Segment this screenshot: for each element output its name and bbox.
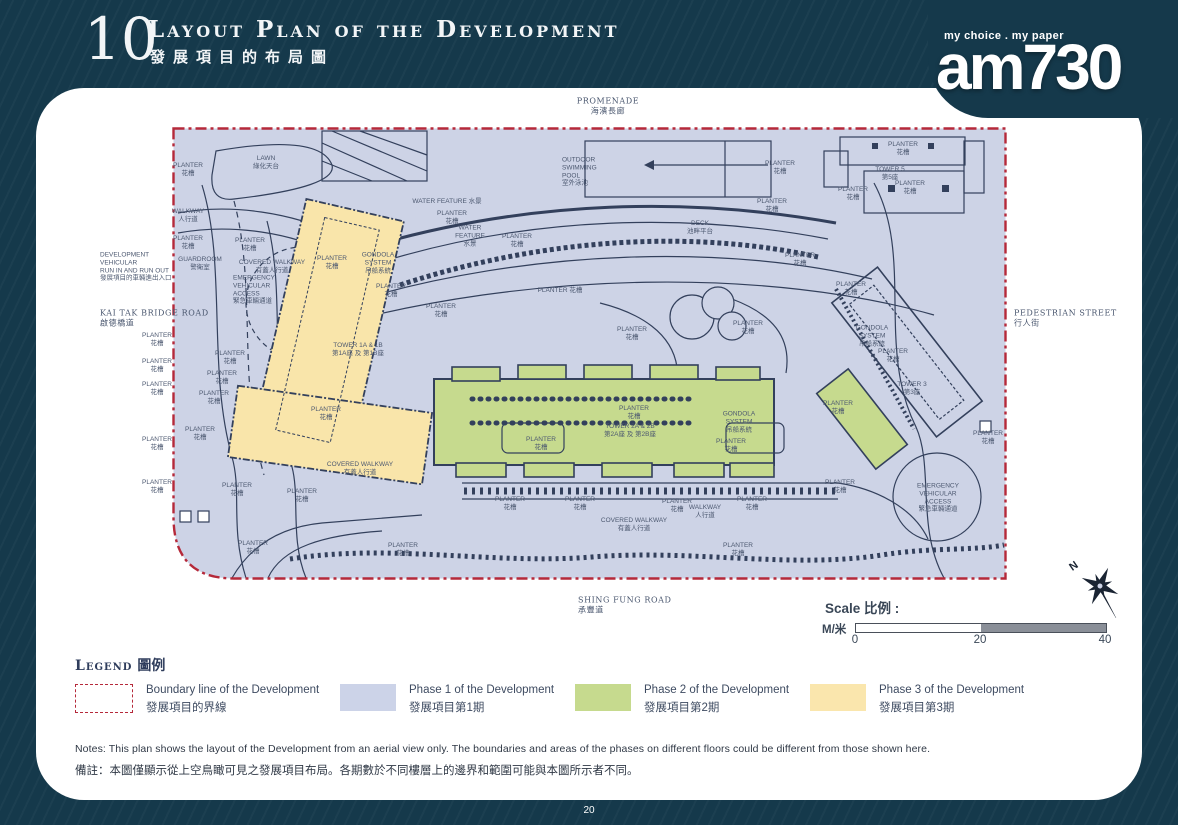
legend-title-en: Legend: [75, 658, 132, 674]
legend-label-en: Phase 1 of the Development: [409, 683, 554, 699]
scale-title: Scale 比例 :: [825, 597, 899, 617]
phase1-swatch: [340, 684, 396, 711]
scale-unit: M/米: [822, 621, 846, 637]
scale-segment-20-40: [981, 624, 1106, 632]
legend-label-zh: 發展項目第1期: [409, 701, 554, 717]
site-plan: [172, 127, 1007, 580]
svg-text:N: N: [1067, 559, 1080, 573]
page-title-chinese: 發展項目的布局圖: [150, 46, 334, 67]
scale-tick: 20: [974, 634, 987, 646]
scale-tick: 0: [852, 634, 858, 646]
legend-item-phase3: Phase 3 of the Development 發展項目第3期: [810, 683, 1024, 716]
section-number: 10: [84, 10, 158, 68]
notes-english: Notes: This plan shows the layout of the…: [75, 743, 930, 755]
brochure-page: 10 Layout Plan of the Development 發展項目的布…: [0, 0, 1178, 825]
notes-chinese: 備註：本圖僅顯示從上空鳥瞰可見之發展項目布局。各期數於不同樓層上的邊界和範圍可能…: [75, 762, 930, 778]
phase2-swatch: [575, 684, 631, 711]
scale-segment-0-20: [856, 624, 981, 632]
scale-indicator: Scale 比例 : M/米 0 20 40: [822, 597, 1118, 649]
legend-label-zh: 發展項目第3期: [879, 701, 1024, 717]
scale-bar: [855, 623, 1107, 633]
scale-tick: 40: [1099, 634, 1112, 646]
legend-label-en: Boundary line of the Development: [146, 683, 319, 699]
legend-label-en: Phase 3 of the Development: [879, 683, 1024, 699]
legend-label-zh: 發展項目的界線: [146, 701, 319, 717]
legend-item-phase1: Phase 1 of the Development 發展項目第1期: [340, 683, 554, 716]
legend-label-en: Phase 2 of the Development: [644, 683, 789, 699]
legend-title: Legend 圖例: [75, 655, 165, 675]
page-title: Layout Plan of the Development: [148, 16, 620, 43]
site-plan-drawing: [172, 127, 1007, 580]
logo-wordmark: am730: [936, 30, 1120, 104]
legend-item-phase2: Phase 2 of the Development 發展項目第2期: [575, 683, 789, 716]
am730-logo: my choice . my paper am730: [928, 0, 1178, 118]
boundary-swatch: [75, 684, 133, 713]
page-footer: 20: [0, 800, 1178, 825]
legend-item-boundary: Boundary line of the Development 發展項目的界線: [75, 683, 319, 716]
legend-title-zh: 圖例: [137, 658, 165, 674]
legend-label-zh: 發展項目第2期: [644, 701, 789, 717]
page-number: 20: [583, 805, 594, 816]
phase3-swatch: [810, 684, 866, 711]
notes: Notes: This plan shows the layout of the…: [75, 743, 930, 778]
